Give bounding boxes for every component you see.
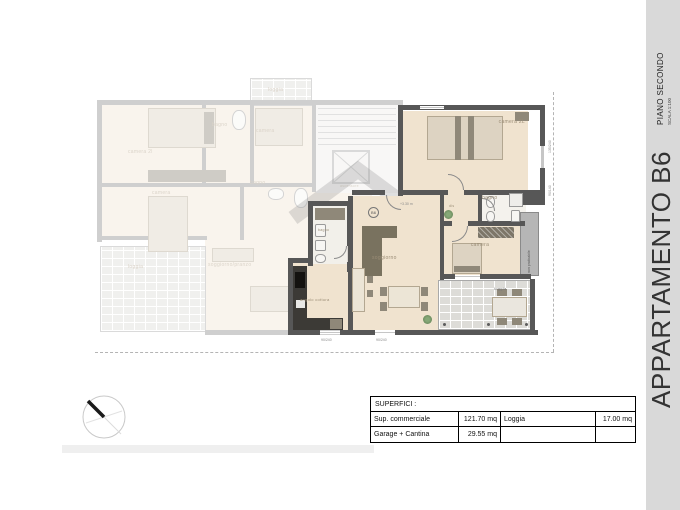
room-label: camera 2l <box>128 149 153 155</box>
sink <box>511 210 520 222</box>
wall-segment <box>395 330 538 335</box>
strip-note: non praticabile <box>527 217 531 273</box>
chair <box>512 318 522 325</box>
wardrobe <box>478 227 514 238</box>
bath-fixture <box>232 110 246 130</box>
chair <box>380 287 387 296</box>
wall-segment <box>340 330 375 335</box>
wall-segment <box>288 258 313 263</box>
wall-segment <box>308 201 352 206</box>
room-label: angolo cottura <box>300 297 348 302</box>
scale-label: SCALA 1:100 <box>667 85 672 125</box>
wall-segment <box>480 274 531 279</box>
dimension-label: 90/140 <box>548 185 552 196</box>
drain-dot <box>443 323 446 326</box>
wall-segment <box>352 190 385 195</box>
room-label: dis <box>449 204 469 208</box>
wardrobe <box>148 170 226 182</box>
table-cell <box>501 427 596 442</box>
table-row: Sup. commerciale 121.70 mq Loggia 17.00 … <box>371 412 635 427</box>
title-block-sidebar: PIANO SECONDO SCALA 1:100 APPARTAMENTO B… <box>646 0 680 510</box>
window <box>320 331 340 334</box>
cooktop <box>295 272 305 288</box>
apartment-title: APPARTAMENTO B6 <box>646 166 677 408</box>
room-label: loggia <box>268 87 283 93</box>
bidet <box>486 211 495 222</box>
room-label: bagno <box>482 195 512 201</box>
chair <box>380 302 387 311</box>
table-cell: 29.55 mq <box>459 427 501 442</box>
wall-segment <box>440 274 455 279</box>
room-label: bagno <box>212 122 227 128</box>
bath-fixture <box>268 188 284 200</box>
bed <box>148 196 188 252</box>
sofa <box>212 248 254 262</box>
wc <box>315 254 326 263</box>
table-cell <box>596 427 635 442</box>
wall-segment <box>97 100 102 242</box>
sheet-edge-band <box>62 445 374 453</box>
window <box>420 106 444 109</box>
wall-segment <box>530 279 535 335</box>
room-label: camera <box>455 242 505 248</box>
room-label: loggia <box>494 286 529 291</box>
wall-segment <box>348 196 353 335</box>
drain-dot <box>487 323 490 326</box>
table-cell: 121.70 mq <box>459 412 501 426</box>
headboard <box>454 266 480 272</box>
room-label: bagno <box>250 180 265 186</box>
plan-sheet: camera 2l bagno camera camera bagno sogg… <box>0 0 680 510</box>
boundary-line <box>95 352 554 353</box>
dimension-label: 90/240 <box>376 338 387 342</box>
drain-dot <box>525 323 528 326</box>
wall-segment <box>521 190 545 205</box>
table-cell: 17.00 mq <box>596 412 635 426</box>
boundary-line <box>553 92 554 352</box>
plant <box>423 315 432 324</box>
room-label: camera <box>152 190 170 196</box>
wall-segment <box>444 221 452 226</box>
table-cell: Loggia <box>501 412 596 426</box>
height-note: +3.30 m <box>400 202 413 206</box>
stairs <box>318 108 396 148</box>
room-label: camera 2L <box>455 119 525 125</box>
shower <box>315 208 345 220</box>
chair <box>497 318 507 325</box>
loggia-table <box>492 297 527 317</box>
wall-segment <box>308 201 313 266</box>
chair <box>421 302 428 311</box>
table-cell: Garage + Cantina <box>371 427 459 442</box>
room-label: soggiorno <box>372 255 427 261</box>
room-label: bagno <box>318 228 346 232</box>
washer <box>315 240 326 251</box>
window <box>540 146 545 168</box>
stool <box>367 276 373 283</box>
wall-segment <box>440 195 444 280</box>
dimension-label: 135/240 <box>548 140 552 153</box>
wall-segment <box>250 100 254 185</box>
fridge <box>330 319 342 329</box>
stool <box>367 290 373 297</box>
window <box>375 331 395 334</box>
bed <box>255 108 303 146</box>
dimension-label: 90/240 <box>321 338 332 342</box>
chair <box>421 287 428 296</box>
wall-segment <box>240 183 244 240</box>
room-label: loggia <box>128 264 143 270</box>
table-row: Garage + Cantina 29.55 mq <box>371 427 635 442</box>
plant <box>444 210 453 219</box>
wall-segment <box>540 105 545 146</box>
window <box>455 275 480 278</box>
sofa <box>362 226 397 238</box>
floor-title: PIANO SECONDO <box>656 30 665 125</box>
dining-table <box>388 286 420 308</box>
superfici-table: SUPERFICI : Sup. commerciale 121.70 mq L… <box>370 396 636 443</box>
headboard <box>204 112 214 144</box>
faded-loggia-bottom <box>100 246 206 332</box>
room-label: camera <box>256 128 274 134</box>
kitchen-island <box>352 268 365 312</box>
wall-segment <box>97 183 316 187</box>
north-compass-icon <box>80 393 128 441</box>
table-cell: Sup. commerciale <box>371 412 459 426</box>
room-label: soggiorno/pranzo <box>208 262 251 268</box>
wall-segment <box>398 105 403 196</box>
apartment-marker: B6 <box>368 207 379 218</box>
table-header: SUPERFICI : <box>371 397 635 412</box>
